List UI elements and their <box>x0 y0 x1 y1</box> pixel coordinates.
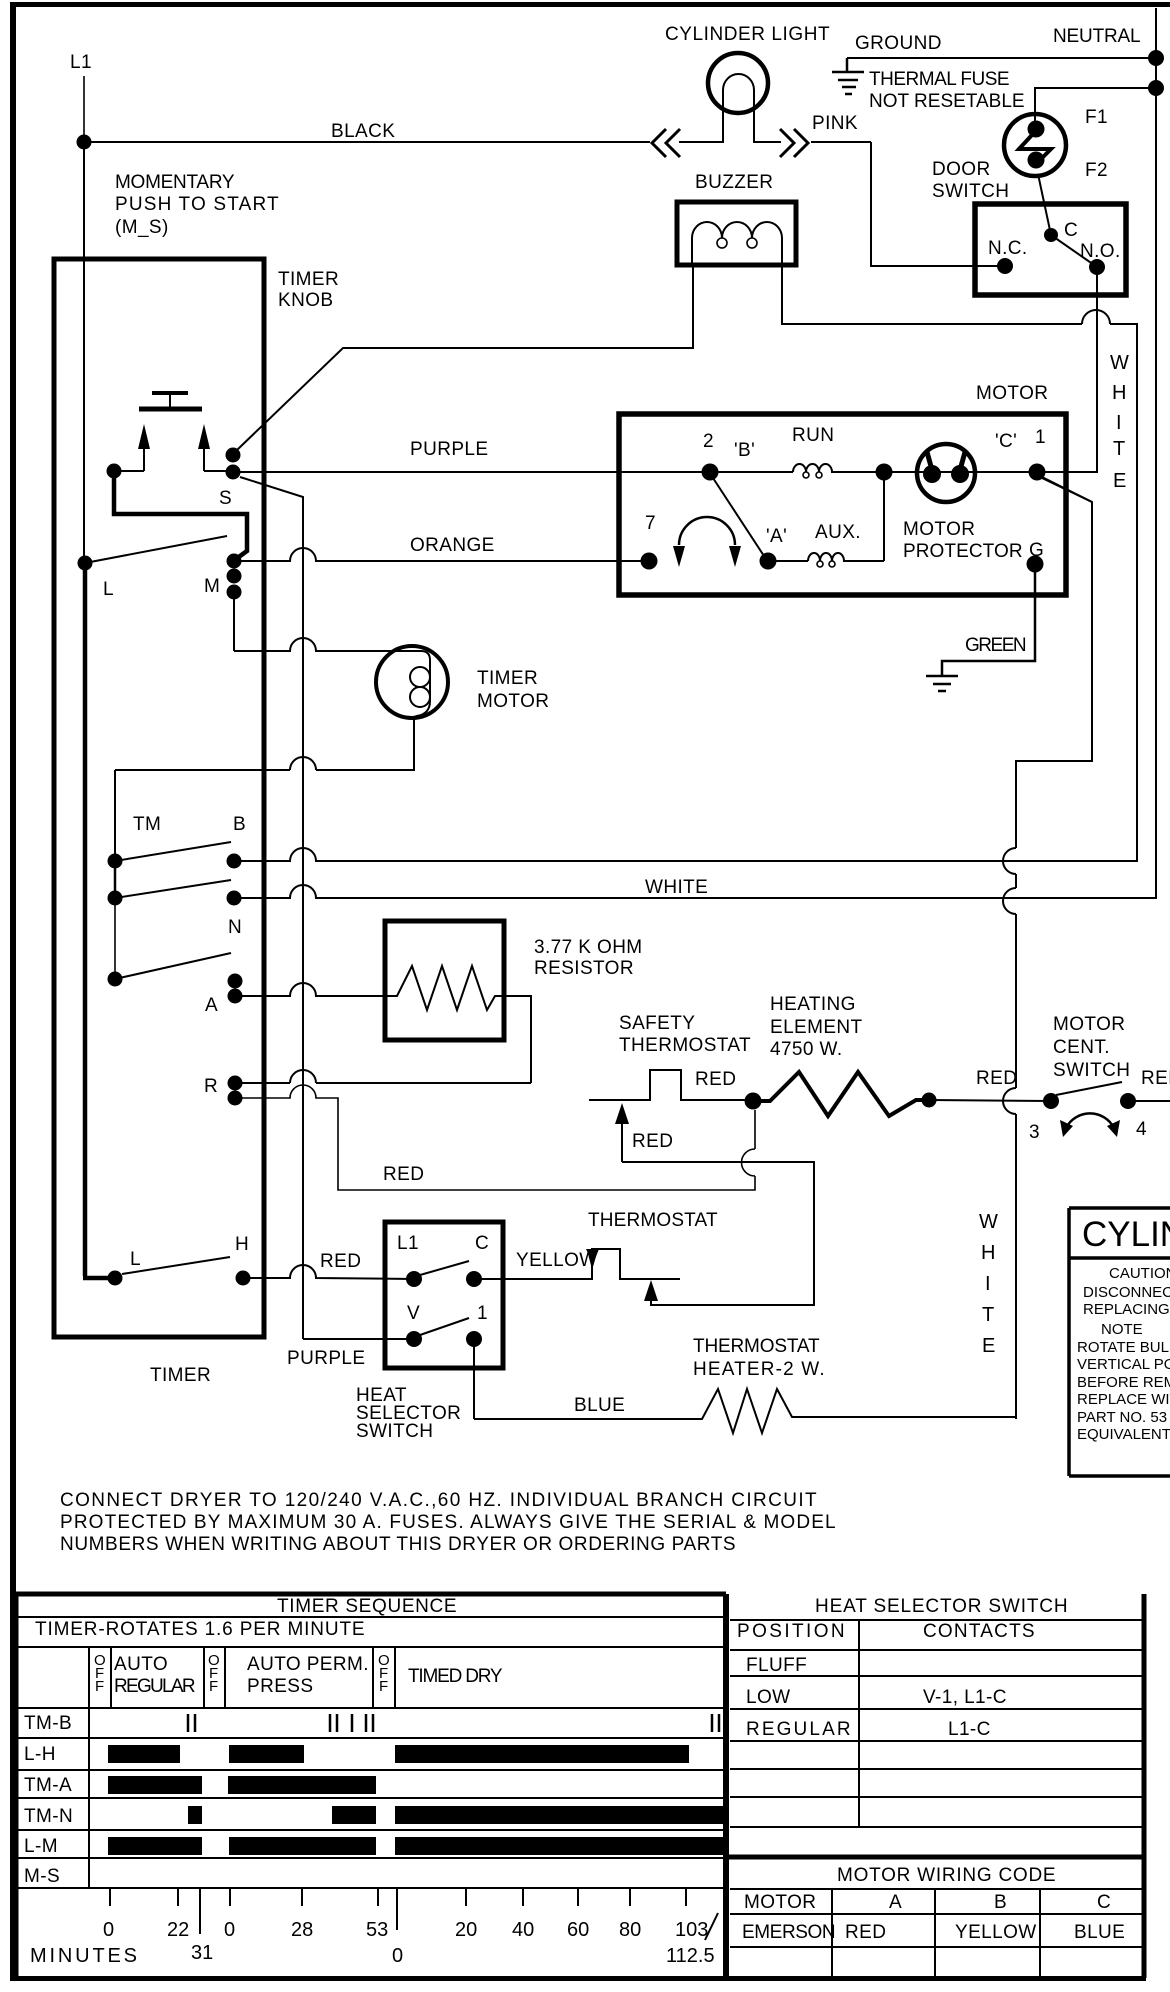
svg-text:L: L <box>103 579 114 600</box>
svg-text:L1-C: L1-C <box>948 1719 991 1740</box>
svg-text:4750 W.: 4750 W. <box>770 1039 843 1060</box>
svg-text:BLACK: BLACK <box>331 121 395 142</box>
svg-text:TM-A: TM-A <box>24 1775 72 1796</box>
svg-text:CYLINDER LIGHT: CYLINDER LIGHT <box>665 24 830 45</box>
svg-text:TIMED DRY: TIMED DRY <box>408 1666 503 1687</box>
svg-text:F: F <box>379 1678 388 1695</box>
svg-text:V-1, L1-C: V-1, L1-C <box>923 1687 1007 1708</box>
svg-text:C: C <box>475 1233 489 1254</box>
svg-text:L-H: L-H <box>24 1744 56 1765</box>
svg-text:NOT RESETABLE: NOT RESETABLE <box>869 91 1025 112</box>
svg-text:REPLACE WIT: REPLACE WIT <box>1077 1391 1170 1408</box>
svg-text:C: C <box>1064 220 1078 241</box>
svg-text:80: 80 <box>619 1919 641 1941</box>
svg-text:REGULAR: REGULAR <box>114 1676 196 1697</box>
svg-text:'A': 'A' <box>766 526 787 547</box>
svg-text:L1: L1 <box>397 1233 419 1254</box>
svg-text:MOTOR WIRING CODE: MOTOR WIRING CODE <box>837 1865 1056 1886</box>
svg-text:MOTOR: MOTOR <box>744 1892 816 1913</box>
svg-text:'B': 'B' <box>734 440 755 461</box>
svg-text:I: I <box>985 1273 991 1295</box>
svg-text:T: T <box>982 1304 994 1326</box>
svg-text:F: F <box>209 1678 218 1695</box>
svg-text:PROTECTOR: PROTECTOR <box>903 541 1023 562</box>
svg-text:31: 31 <box>191 1942 213 1964</box>
svg-text:MOTOR: MOTOR <box>477 691 549 712</box>
svg-text:MOTOR: MOTOR <box>976 383 1048 404</box>
svg-text:NUMBERS WHEN WRITING ABOUT THI: NUMBERS WHEN WRITING ABOUT THIS DRYER OR… <box>60 1534 736 1555</box>
svg-text:M-S: M-S <box>24 1866 60 1887</box>
svg-text:M: M <box>204 576 220 597</box>
svg-text:AUX.: AUX. <box>815 522 861 543</box>
svg-text:G: G <box>1029 540 1044 561</box>
svg-text:BUZZER: BUZZER <box>695 172 773 193</box>
svg-text:HEATING: HEATING <box>770 994 856 1015</box>
svg-text:THERMOSTAT: THERMOSTAT <box>693 1336 820 1357</box>
svg-text:RED: RED <box>1141 1068 1170 1089</box>
svg-text:MOTOR: MOTOR <box>1053 1014 1125 1035</box>
svg-text:DISCONNECT P: DISCONNECT P <box>1083 1284 1170 1301</box>
svg-text:HEAT SELECTOR SWITCH: HEAT SELECTOR SWITCH <box>815 1596 1068 1617</box>
svg-text:C: C <box>1097 1892 1111 1913</box>
svg-text:F1: F1 <box>1085 107 1108 128</box>
svg-text:A: A <box>889 1892 902 1913</box>
svg-text:EQUIVALENT: EQUIVALENT <box>1077 1426 1170 1443</box>
svg-text:PURPLE: PURPLE <box>287 1348 365 1369</box>
svg-text:FLUFF: FLUFF <box>746 1655 807 1676</box>
svg-text:N: N <box>228 917 242 938</box>
svg-text:V: V <box>407 1303 420 1324</box>
svg-text:TIMER: TIMER <box>477 668 538 689</box>
svg-text:L: L <box>130 1249 141 1270</box>
svg-text:RED: RED <box>383 1164 424 1185</box>
svg-text:TIMER-ROTATES 1.6 PER MINUTE: TIMER-ROTATES 1.6 PER MINUTE <box>35 1619 365 1640</box>
svg-text:F: F <box>95 1678 104 1695</box>
svg-text:NOTE: NOTE <box>1101 1321 1143 1338</box>
svg-text:NEUTRAL: NEUTRAL <box>1053 26 1141 47</box>
svg-text:CAUTION: CAUTION <box>1109 1265 1170 1282</box>
svg-text:H: H <box>1112 382 1126 404</box>
svg-text:LOW: LOW <box>746 1687 790 1708</box>
svg-text:F2: F2 <box>1085 160 1108 181</box>
svg-text:H: H <box>981 1242 995 1264</box>
svg-text:CENT.: CENT. <box>1053 1037 1110 1058</box>
svg-text:GROUND: GROUND <box>855 33 942 54</box>
svg-text:AUTO: AUTO <box>114 1654 168 1675</box>
svg-text:PROTECTED BY MAXIMUM 30 A. FUS: PROTECTED BY MAXIMUM 30 A. FUSES. ALWAYS… <box>60 1512 836 1533</box>
svg-text:RUN: RUN <box>792 425 834 446</box>
svg-text:R: R <box>204 1076 218 1097</box>
svg-text:BLUE: BLUE <box>1074 1922 1125 1943</box>
svg-text:W: W <box>979 1211 998 1233</box>
svg-text:H: H <box>235 1234 249 1255</box>
svg-text:THERMOSTAT: THERMOSTAT <box>619 1035 751 1056</box>
svg-text:RED: RED <box>845 1922 886 1943</box>
svg-text:TIMER SEQUENCE: TIMER SEQUENCE <box>277 1596 457 1617</box>
svg-text:BEFORE REMO: BEFORE REMO <box>1077 1374 1170 1391</box>
svg-text:ORANGE: ORANGE <box>410 535 495 556</box>
svg-text:EMERSON: EMERSON <box>742 1922 836 1943</box>
svg-text:WHITE: WHITE <box>645 877 708 898</box>
svg-text:1: 1 <box>477 1303 488 1324</box>
svg-text:GREEN: GREEN <box>965 635 1027 656</box>
svg-text:RED: RED <box>632 1131 673 1152</box>
svg-text:0: 0 <box>103 1919 114 1941</box>
svg-text:3.77 K OHM: 3.77 K OHM <box>534 937 643 958</box>
svg-text:ELEMENT: ELEMENT <box>770 1017 863 1038</box>
svg-text:1: 1 <box>1035 427 1046 448</box>
svg-text:S: S <box>219 488 232 509</box>
svg-text:VERTICAL PO: VERTICAL PO <box>1077 1356 1170 1373</box>
svg-text:SWITCH: SWITCH <box>932 181 1009 202</box>
svg-text:N.C.: N.C. <box>988 238 1028 259</box>
svg-text:TM-N: TM-N <box>24 1806 73 1827</box>
svg-text:ROTATE BULB: ROTATE BULB <box>1077 1339 1170 1356</box>
svg-text:RED: RED <box>320 1251 361 1272</box>
svg-text:THERMOSTAT: THERMOSTAT <box>588 1210 718 1231</box>
svg-text:TIMER: TIMER <box>150 1365 211 1386</box>
svg-text:MOMENTARY: MOMENTARY <box>115 172 235 193</box>
svg-text:MOTOR: MOTOR <box>903 519 975 540</box>
svg-text:THERMAL FUSE: THERMAL FUSE <box>869 69 1010 90</box>
svg-text:PURPLE: PURPLE <box>410 439 488 460</box>
svg-text:22: 22 <box>167 1919 189 1941</box>
svg-text:CONTACTS: CONTACTS <box>923 1621 1035 1642</box>
svg-text:3: 3 <box>1029 1122 1040 1143</box>
svg-text:2: 2 <box>703 431 714 452</box>
svg-text:0: 0 <box>224 1919 235 1941</box>
svg-text:53: 53 <box>366 1919 388 1941</box>
svg-text:CYLINDER: CYLINDER <box>1082 1215 1170 1254</box>
svg-text:40: 40 <box>512 1919 534 1941</box>
svg-text:RED: RED <box>976 1068 1017 1089</box>
svg-text:(M_S): (M_S) <box>115 217 169 238</box>
svg-text:B: B <box>233 814 246 835</box>
svg-text:L1: L1 <box>70 52 92 73</box>
svg-text:TIMER: TIMER <box>278 269 339 290</box>
svg-text:PRESS: PRESS <box>247 1676 313 1697</box>
svg-text:103: 103 <box>675 1919 708 1941</box>
svg-text:RED: RED <box>695 1069 736 1090</box>
svg-text:TM-B: TM-B <box>24 1713 72 1734</box>
svg-text:CONNECT DRYER TO 120/240 V.A.C: CONNECT DRYER TO 120/240 V.A.C.,60 HZ. I… <box>60 1490 817 1511</box>
svg-text:4: 4 <box>1136 1119 1147 1140</box>
svg-text:RESISTOR: RESISTOR <box>534 958 634 979</box>
svg-text:I: I <box>1116 412 1122 434</box>
svg-text:28: 28 <box>291 1919 313 1941</box>
svg-text:W: W <box>1110 352 1129 374</box>
svg-text:KNOB: KNOB <box>278 290 333 311</box>
svg-text:7: 7 <box>645 513 656 534</box>
svg-text:B: B <box>994 1892 1007 1913</box>
svg-text:YELLOW: YELLOW <box>516 1250 598 1271</box>
svg-text:HEATER-2 W.: HEATER-2 W. <box>693 1359 825 1380</box>
svg-text:112.5: 112.5 <box>666 1945 715 1967</box>
svg-text:T: T <box>1113 438 1125 460</box>
svg-text:DOOR: DOOR <box>932 159 991 180</box>
svg-text:E: E <box>1113 470 1126 492</box>
svg-text:E: E <box>982 1335 995 1357</box>
svg-text:SAFETY: SAFETY <box>619 1013 695 1034</box>
svg-text:20: 20 <box>455 1919 477 1941</box>
svg-text:N.O.: N.O. <box>1080 241 1121 262</box>
svg-text:AUTO PERM.: AUTO PERM. <box>247 1654 369 1675</box>
svg-text:BLUE: BLUE <box>574 1395 625 1416</box>
svg-text:SWITCH: SWITCH <box>1053 1060 1130 1081</box>
svg-text:YELLOW: YELLOW <box>955 1922 1037 1943</box>
svg-text:A: A <box>205 995 218 1016</box>
svg-text:L-M: L-M <box>24 1836 58 1857</box>
svg-text:PUSH TO START: PUSH TO START <box>115 194 279 215</box>
svg-text:PINK: PINK <box>812 113 858 134</box>
svg-text:60: 60 <box>567 1919 589 1941</box>
svg-text:'C': 'C' <box>995 431 1017 452</box>
svg-text:SWITCH: SWITCH <box>356 1421 433 1442</box>
svg-text:TM: TM <box>133 814 161 835</box>
svg-text:0: 0 <box>392 1945 403 1967</box>
svg-text:REPLACING BU: REPLACING BU <box>1083 1301 1170 1318</box>
svg-text:PART NO. 53: PART NO. 53 <box>1077 1409 1167 1426</box>
